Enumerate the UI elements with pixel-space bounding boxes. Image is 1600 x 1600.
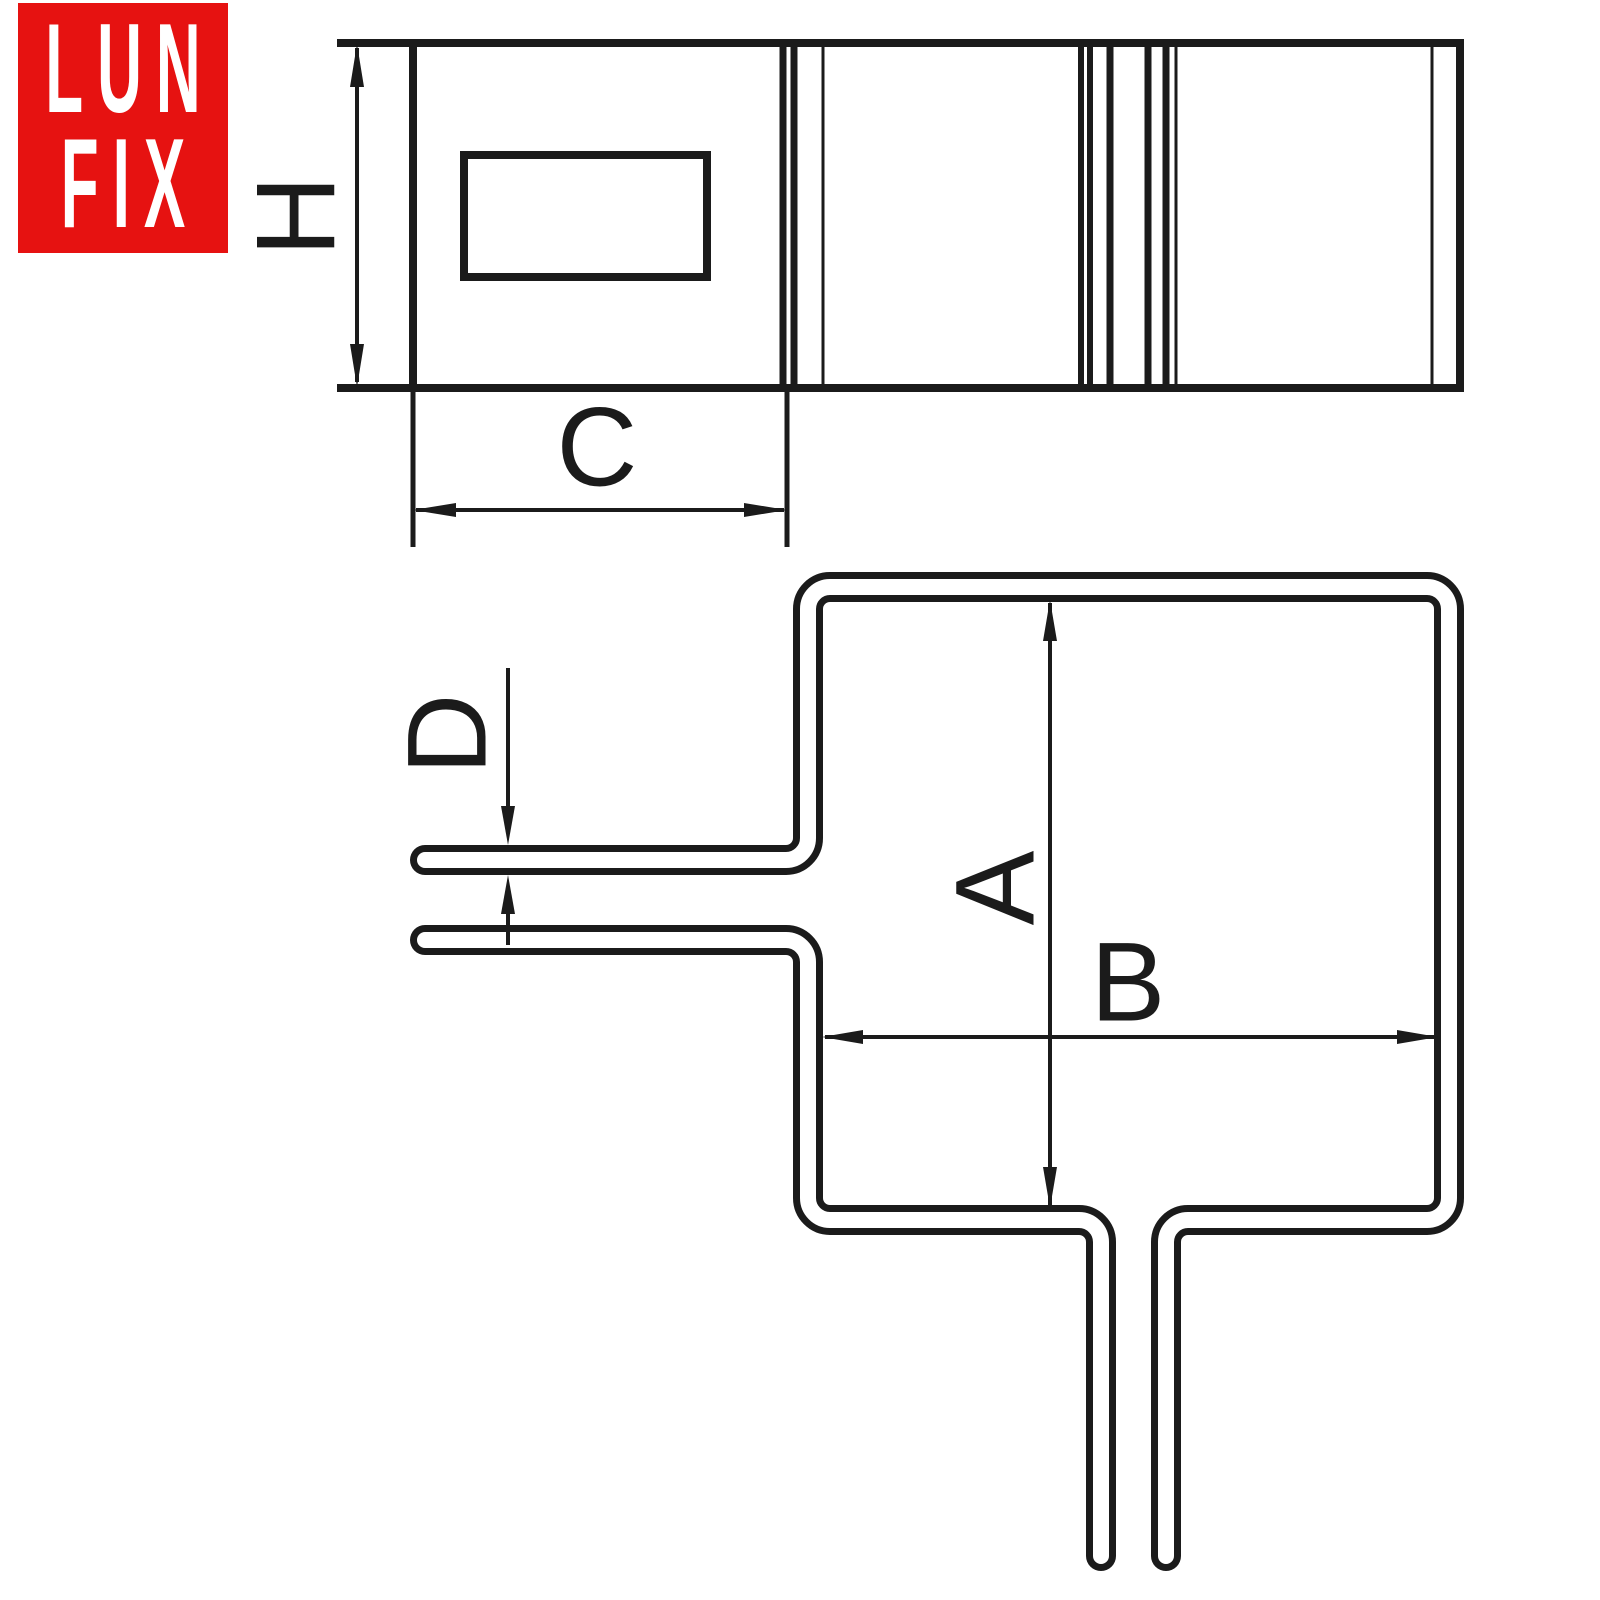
wire-lower-path-core — [425, 940, 1101, 1556]
wire-upper-path-core — [425, 587, 1449, 1556]
dimension-label-h: H — [234, 176, 359, 257]
technical-drawing: H C D — [0, 0, 1600, 1600]
arrowhead-down — [1043, 1167, 1057, 1208]
dimension-label-a: A — [933, 850, 1058, 925]
dimension-h: H — [234, 44, 365, 387]
arrowhead-right — [744, 503, 787, 517]
arrowhead-down — [350, 344, 364, 387]
arrowhead-up — [350, 44, 364, 87]
strap-slot — [464, 155, 707, 277]
dimension-label-b: B — [1091, 920, 1166, 1045]
arrowhead-right — [1397, 1030, 1438, 1044]
wire-lower-path-outline — [425, 940, 1101, 1556]
dimension-c: C — [413, 385, 787, 548]
dimension-a: A — [933, 600, 1058, 1208]
dimension-label-d: D — [385, 694, 510, 775]
arrowhead-up — [501, 875, 515, 914]
dimension-label-c: C — [557, 385, 638, 510]
arrowhead-up — [1043, 600, 1057, 641]
diagram-page: LUN FIX — [0, 0, 1600, 1600]
wire-bracket-view — [425, 587, 1449, 1556]
dimension-d: D — [385, 668, 516, 945]
strap-fold-lines — [783, 43, 1432, 388]
arrowhead-down — [501, 806, 515, 845]
arrowhead-left — [822, 1030, 863, 1044]
dimension-b: B — [822, 920, 1438, 1045]
arrowhead-left — [413, 503, 456, 517]
wire-upper-path-outline — [425, 587, 1449, 1556]
top-view — [337, 39, 1464, 392]
